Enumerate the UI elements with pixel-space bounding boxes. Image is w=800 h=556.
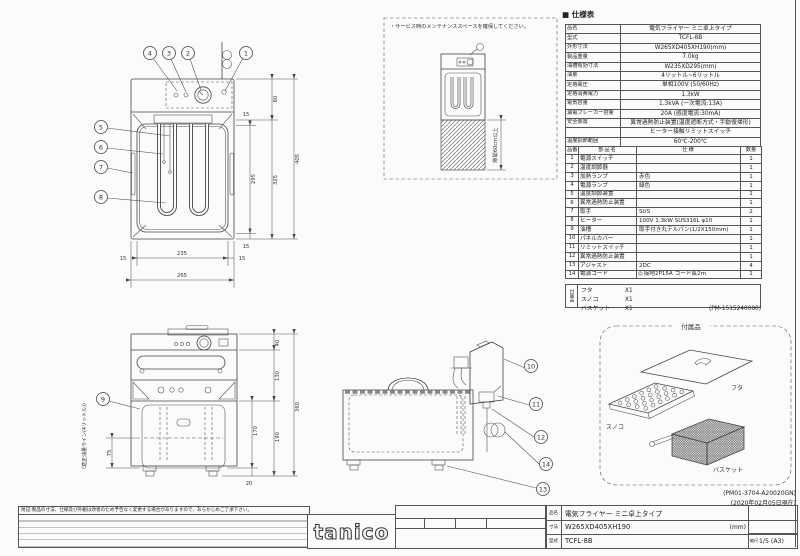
spec-row: 漏電ブレーカー容量 20A (感度電流:30mA) bbox=[566, 109, 761, 118]
lamp bbox=[170, 388, 174, 392]
parts-row: 5 温度調節装置 1 bbox=[566, 190, 762, 199]
parts-row: 8 ヒーター 100V 1.3kW SUS316L φ10 1 bbox=[566, 217, 762, 226]
tank-outline bbox=[142, 405, 225, 468]
accessory-name: フタ bbox=[581, 285, 625, 294]
part-qty: 1 bbox=[741, 155, 762, 164]
spec-label: 製品重量 bbox=[566, 53, 621, 62]
dim-label: 405 bbox=[295, 154, 301, 164]
product-name-label: 品名 bbox=[546, 506, 562, 520]
callout-number: 4 bbox=[148, 50, 152, 58]
parts-row: 4 電源ランプ 緑色 1 bbox=[566, 181, 762, 190]
part-name: 温度調節装置 bbox=[579, 190, 637, 199]
part-qty: 1 bbox=[741, 163, 762, 172]
maintenance-space-hatch bbox=[441, 120, 485, 170]
spec-value: 1.3kVA (一次電流:13A) bbox=[621, 100, 761, 109]
callout-number: 9 bbox=[101, 396, 105, 404]
spec-label: 電気容量 bbox=[566, 100, 621, 109]
revision-table bbox=[18, 514, 308, 548]
part-spec: 100V 1.3kW SUS316L φ10 bbox=[639, 218, 712, 224]
part-name: 異常過熱防止装置 bbox=[579, 199, 637, 208]
part-number: 5 bbox=[566, 190, 579, 199]
part-name: 異常過熱防止装置 bbox=[579, 252, 637, 261]
plan-view-drawing: 4 3 2 1 5 6 7 8 bbox=[92, 42, 310, 290]
callout-6: 6 bbox=[95, 141, 164, 155]
dimensions-label: 寸法 bbox=[546, 520, 562, 534]
parts-row: 3 加熱ランプ 赤色 1 bbox=[566, 172, 762, 181]
accessories-box-title: 付属品 bbox=[681, 322, 701, 331]
part-name: 電源コード bbox=[579, 270, 637, 279]
spec-row: 外形寸法 W265XD405XH190(mm) bbox=[566, 43, 761, 52]
lid-label: フタ bbox=[731, 384, 743, 392]
callout-13: 13 bbox=[447, 466, 550, 496]
sheet-border bbox=[795, 0, 796, 547]
spec-table-title: ■ 仕様表 bbox=[562, 9, 594, 20]
thermostat-knob bbox=[197, 336, 211, 350]
callout-number: 11 bbox=[532, 401, 540, 409]
part-qty: 1 bbox=[741, 217, 762, 226]
lamp bbox=[179, 388, 183, 392]
cord-loop bbox=[223, 60, 232, 69]
dim-label: 15 bbox=[239, 256, 246, 262]
callout-7: 7 bbox=[95, 161, 134, 174]
spec-row: 型式 TCFL-8B bbox=[566, 34, 761, 43]
dim-label: 75 bbox=[107, 450, 113, 457]
spec-table: 品名 電気フライヤー ミニ卓上タイプ 型式 TCFL-8B 外形寸法 W265X… bbox=[565, 24, 761, 147]
part-name: 電源ランプ bbox=[579, 181, 637, 190]
part-qty: 1 bbox=[741, 270, 762, 279]
spec-value: 電気フライヤー ミニ卓上タイプ bbox=[621, 25, 761, 34]
part-spec: 赤色 bbox=[639, 174, 650, 180]
heater-tubes bbox=[452, 77, 472, 108]
service-note: ・サービス時のメンテナンススペースを確保してください。 bbox=[390, 22, 529, 30]
parts-row: 9 油槽 取手付き丸テルパン(1/2X150mm) 1 bbox=[566, 226, 762, 235]
callout-8: 8 bbox=[95, 191, 167, 204]
dim-label: 15 bbox=[120, 256, 127, 262]
spec-value: 4リットル~6リットル bbox=[621, 71, 761, 80]
spec-value: 20A (感度電流:30mA) bbox=[621, 109, 761, 118]
tank-body bbox=[343, 390, 473, 460]
side-view-drawing: 10 11 12 14 13 bbox=[335, 338, 555, 500]
product-name: 電気フライヤー ミニ卓上タイプ bbox=[562, 506, 749, 520]
oil-level-label: 〈適正油量ライン(4リットル)〉 bbox=[81, 400, 88, 472]
dim-label: 360 bbox=[295, 402, 301, 412]
part-spec: 取手付き丸テルパン(1/2X150mm) bbox=[639, 227, 728, 233]
accessories-illustration: 付属品 フタ スノコ バスケット bbox=[595, 318, 796, 490]
part-number: 2 bbox=[566, 163, 579, 172]
spec-label: 油量 bbox=[566, 71, 621, 80]
part-number: 3 bbox=[566, 172, 579, 181]
control-head bbox=[451, 341, 503, 404]
parts-row: 6 異常過熱防止装置 1 bbox=[566, 199, 762, 208]
scale-value: 1/5 (A3) bbox=[759, 538, 784, 545]
part-qty: 1 bbox=[741, 181, 762, 190]
adjustable-legs bbox=[143, 466, 219, 476]
callout-number: 13 bbox=[539, 486, 547, 494]
spec-row: 電気容量 1.3kVA (一次電流:13A) bbox=[566, 100, 761, 109]
spec-row: ヒーター接触リミットスイッチ bbox=[566, 128, 761, 137]
cord-loop bbox=[477, 44, 484, 51]
heat-lamp bbox=[184, 93, 188, 97]
callout-1: 1 bbox=[225, 47, 253, 92]
part-name: 温度調節器 bbox=[579, 163, 637, 172]
part-qty: 1 bbox=[741, 243, 762, 252]
part-name: ヒーター bbox=[579, 217, 637, 226]
callout-number: 6 bbox=[99, 144, 103, 152]
callout-number: 8 bbox=[99, 194, 103, 202]
part-number: 9 bbox=[566, 226, 579, 235]
part-qty: 1 bbox=[741, 252, 762, 261]
part-number: 13 bbox=[566, 261, 579, 270]
callout-number: 7 bbox=[99, 164, 103, 172]
callout-2: 2 bbox=[182, 47, 202, 91]
front-dimensions-right: 40 130 170 190 20 360 bbox=[222, 334, 301, 487]
dimensions-unit: (mm) bbox=[730, 524, 749, 531]
parts-row: 7 取手 SUS 2 bbox=[566, 208, 762, 217]
plan-dimensions-bottom: 15 235 15 265 bbox=[120, 241, 246, 288]
accessory-item: スノコX1 bbox=[581, 294, 760, 303]
accessory-name: スノコ bbox=[581, 294, 625, 303]
part-number: 4 bbox=[566, 181, 579, 190]
part-name: 加熱ランプ bbox=[579, 172, 637, 181]
part-number: 12 bbox=[566, 252, 579, 261]
parts-header-qty: 数量 bbox=[741, 147, 762, 155]
parts-row: 11 リミットスイッチ 1 bbox=[566, 243, 762, 252]
maintenance-clearance-view: ・サービス時のメンテナンススペースを確保してください。 隙間60cm以上 bbox=[381, 15, 560, 183]
part-name: アジャスト bbox=[579, 261, 637, 270]
part-spec: 2DC bbox=[639, 263, 651, 269]
carry-handle bbox=[388, 378, 428, 390]
part-qty: 1 bbox=[741, 235, 762, 244]
parts-header-num: 品番 bbox=[566, 147, 579, 155]
part-number: 14 bbox=[566, 270, 579, 279]
dim-label: 170 bbox=[253, 426, 259, 436]
parts-row: 14 電源コード ◎接地2P15A コード長2m 1 bbox=[566, 270, 762, 279]
part-name: パネルカバー bbox=[579, 235, 637, 244]
overall-dimensions: W265XD405XH190 bbox=[565, 523, 630, 531]
spec-row: 定格消費電力 1.3kW bbox=[566, 90, 761, 99]
title-block-info: 品名 電気フライヤー ミニ卓上タイプ 寸法 W265XD405XH190(mm)… bbox=[545, 505, 798, 549]
callout-10: 10 bbox=[504, 359, 538, 373]
oil-tank-outline bbox=[137, 124, 228, 232]
side-slot bbox=[230, 153, 234, 195]
part-qty: 2 bbox=[741, 208, 762, 217]
cord-loop bbox=[223, 51, 232, 60]
accessory-item: フタX1 bbox=[581, 285, 760, 294]
side-slot bbox=[132, 153, 136, 195]
part-name: 油槽 bbox=[579, 226, 637, 235]
spec-label: 品名 bbox=[566, 25, 621, 34]
heater-tubes bbox=[159, 124, 207, 214]
dim-label: 265 bbox=[177, 273, 187, 279]
callout-number: 12 bbox=[537, 434, 545, 442]
callout-number: 2 bbox=[186, 50, 190, 58]
dim-label: 80 bbox=[273, 96, 279, 103]
part-qty: 1 bbox=[741, 199, 762, 208]
power-switch bbox=[219, 339, 228, 346]
spec-row: 定格電圧 単相100V (50/60Hz) bbox=[566, 81, 761, 90]
document-number-2: (PM01-3704-A20020GN) bbox=[600, 490, 796, 497]
parts-table: 品番 部品名 仕様 数量 1 電源スイッチ 1 2 温度調節器 bbox=[565, 146, 762, 279]
carry-handle bbox=[137, 356, 225, 369]
part-spec: 接地2P15A コード長2m bbox=[644, 271, 706, 277]
part-qty: 1 bbox=[741, 172, 762, 181]
drawing-sheet: 4 3 2 1 5 6 7 8 bbox=[0, 0, 800, 556]
model-label: 型式 bbox=[546, 534, 562, 548]
callout-11: 11 bbox=[498, 396, 543, 411]
accessories-list: 付属品 フタX1 スノコX1 バスケットX1 bbox=[565, 284, 761, 308]
dim-label: 15 bbox=[243, 244, 250, 250]
parts-row: 12 異常過熱防止装置 1 bbox=[566, 252, 762, 261]
part-number: 10 bbox=[566, 235, 579, 244]
part-number: 7 bbox=[566, 208, 579, 217]
dim-label: 20 bbox=[246, 481, 253, 487]
callout-number: 3 bbox=[167, 50, 171, 58]
spec-label: 外形寸法 bbox=[566, 43, 621, 52]
accessories-list-label: 付属品 bbox=[566, 285, 578, 307]
parts-row: 2 温度調節器 1 bbox=[566, 163, 762, 172]
spec-label: 安全装置 bbox=[566, 118, 621, 127]
spec-label: 定格電圧 bbox=[566, 81, 621, 90]
rack-illustration bbox=[609, 383, 695, 419]
spec-value: 1.3kW bbox=[621, 90, 761, 99]
control-panel-outline bbox=[166, 82, 232, 108]
lid-illustration bbox=[641, 350, 752, 384]
spec-row: 製品重量 7.0kg bbox=[566, 53, 761, 62]
spec-label: 型式 bbox=[566, 34, 621, 43]
part-number: 1 bbox=[566, 155, 579, 164]
spec-label: 油槽有効寸法 bbox=[566, 62, 621, 71]
parts-row: 10 パネルカバー 1 bbox=[566, 235, 762, 244]
parts-row: 1 電源スイッチ 1 bbox=[566, 155, 762, 164]
tanico-logo: tanico bbox=[314, 520, 390, 544]
spec-value: W265XD405XH190(mm) bbox=[621, 43, 761, 52]
rack-label: スノコ bbox=[606, 424, 624, 431]
spec-row: 油槽有効寸法 W235XD295(mm) bbox=[566, 62, 761, 71]
parts-header-row: 品番 部品名 仕様 数量 bbox=[566, 147, 762, 155]
spec-value: 7.0kg bbox=[621, 53, 761, 62]
spec-value: 単相100V (50/60Hz) bbox=[621, 81, 761, 90]
callout-number: 5 bbox=[99, 124, 103, 132]
lamp bbox=[205, 387, 211, 393]
plug-icon: ◎ bbox=[638, 271, 643, 277]
part-number: 11 bbox=[566, 243, 579, 252]
part-name: 取手 bbox=[579, 208, 637, 217]
dim-label: 295 bbox=[251, 174, 257, 184]
plan-dimensions-right: 15 295 15 80 325 405 bbox=[236, 79, 301, 250]
basket-illustration bbox=[650, 419, 745, 465]
power-lamp bbox=[174, 93, 178, 97]
dim-label: 130 bbox=[275, 371, 281, 381]
lamp bbox=[158, 387, 164, 393]
callout-number: 10 bbox=[527, 363, 535, 371]
adjustable-legs bbox=[347, 460, 445, 470]
model-number: TCFL-8B bbox=[562, 534, 749, 548]
front-view-drawing: 9 〈適正油量ライン(4リットル)〉 75 40 130 170 190 20 … bbox=[75, 325, 300, 493]
dim-label: 190 bbox=[275, 432, 281, 442]
limit-switch-assembly bbox=[479, 386, 501, 452]
part-number: 6 bbox=[566, 199, 579, 208]
parts-row: 13 アジャスト 2DC 4 bbox=[566, 261, 762, 270]
dim-label: 40 bbox=[275, 340, 281, 347]
drain-plug bbox=[177, 419, 190, 426]
spec-label: 漏電ブレーカー容量 bbox=[566, 109, 621, 118]
basket-label: バスケット bbox=[713, 467, 743, 474]
spec-label bbox=[566, 128, 621, 137]
title-block-right-column: 縮尺 1/5 (A3) bbox=[748, 506, 797, 548]
parts-header-name: 部品名 bbox=[579, 147, 637, 155]
title-block-middle bbox=[395, 505, 547, 549]
part-name: 電源スイッチ bbox=[579, 155, 637, 164]
spec-value: ヒーター接触リミットスイッチ bbox=[621, 128, 761, 137]
callout-12: 12 bbox=[492, 409, 548, 444]
part-qty: 1 bbox=[741, 226, 762, 235]
dim-label: 235 bbox=[177, 251, 187, 257]
part-number: 8 bbox=[566, 217, 579, 226]
parts-header-spec: 仕様 bbox=[637, 147, 741, 155]
spec-value: 異常過熱防止装置(温度遮断方式・手動復帰形) bbox=[621, 118, 761, 127]
gap-dimension-label: 隙間60cm以上 bbox=[491, 127, 499, 162]
logo-cell: tanico bbox=[307, 514, 396, 549]
part-spec: SUS bbox=[639, 209, 650, 215]
spec-label: 定格消費電力 bbox=[566, 90, 621, 99]
part-qty: 4 bbox=[741, 261, 762, 270]
spec-row: 油量 4リットル~6リットル bbox=[566, 71, 761, 80]
callout-number: 14 bbox=[542, 461, 550, 469]
dim-label: 15 bbox=[243, 112, 250, 118]
spec-value: W235XD295(mm) bbox=[621, 62, 761, 71]
part-name: リミットスイッチ bbox=[579, 243, 637, 252]
spec-row: 安全装置 異常過熱防止装置(温度遮断方式・手動復帰形) bbox=[566, 118, 761, 127]
document-number-1: (PM-1515240000) bbox=[600, 306, 761, 312]
part-qty: 1 bbox=[741, 190, 762, 199]
callout-number: 1 bbox=[244, 50, 248, 58]
spec-value: TCFL-8B bbox=[621, 34, 761, 43]
scale-label: 縮尺 bbox=[749, 538, 759, 544]
part-spec: 緑色 bbox=[639, 183, 650, 189]
spec-row: 品名 電気フライヤー ミニ卓上タイプ bbox=[566, 25, 761, 34]
dim-label: 325 bbox=[273, 175, 279, 185]
